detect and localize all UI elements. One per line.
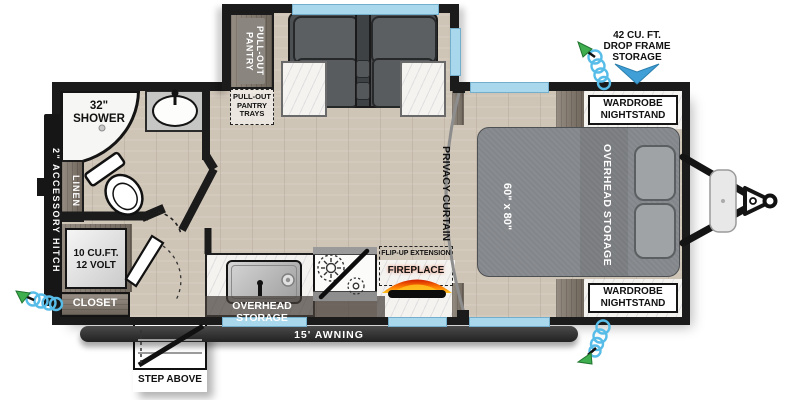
awning-label: 15' AWNING: [80, 329, 578, 341]
window-bottom-bedroom: [469, 317, 550, 327]
drop-frame-storage-label: 42 CU. FT. DROP FRAME STORAGE: [597, 30, 677, 66]
bathroom-sink: [152, 95, 198, 127]
stove-lid-hinge: [313, 247, 377, 255]
wardrobe-rear-label: WARDROBE NIGHTSTAND: [589, 98, 677, 122]
bathroom-wall-right: [202, 88, 210, 160]
window-bottom-center: [388, 317, 447, 327]
cord-plug-icon: [16, 291, 30, 303]
pillow-bottom: [634, 203, 676, 259]
fridge-label: 10 CU.FT. 12 VOLT: [66, 248, 126, 272]
pantry-label: PULL-OUT PANTRY: [238, 19, 265, 83]
theater-seat-back-right: [371, 16, 437, 64]
step-label: STEP ABOVE: [134, 374, 206, 387]
step-tread-2: [138, 352, 202, 354]
accessory-hitch-label: 2" ACCESSORY HITCH: [45, 118, 61, 302]
pantry-trays-label: PULL-OUT PANTRY TRAYS: [230, 93, 274, 121]
hitch-coupler: [765, 196, 776, 207]
window-slideout-side: [450, 28, 461, 76]
hose-nozzle-icon: [578, 42, 592, 57]
bed-size-label: 60" x 80": [493, 170, 513, 244]
hose-coil-bottom-right: [578, 321, 610, 365]
propane-tank-cover: [710, 170, 736, 232]
floorplan-canvas: 2" ACCESSORY HITCH 32" SHOWER LINEN 10 C…: [0, 0, 800, 400]
slideout-wall-left: [222, 4, 231, 90]
privacy-curtain-label: PRIVACY CURTAIN: [432, 140, 452, 248]
bedroom-doorframe-bottom: [452, 283, 464, 317]
fireplace-label: FIREPLACE: [380, 265, 452, 276]
end-table-left: [281, 61, 327, 117]
stove-base: [313, 291, 377, 301]
pillow-top: [634, 145, 676, 201]
drop-frame-storage-arrow-icon: [615, 64, 659, 84]
bedroom-cabinet-top: [556, 91, 584, 129]
window-bedroom-top: [470, 82, 549, 93]
bedroom-cabinet-bottom: [556, 279, 584, 317]
bed-overhead-label: OVERHEAD STORAGE: [593, 138, 613, 272]
wardrobe-front-label: WARDROBE NIGHTSTAND: [589, 286, 677, 310]
bedroom-doorframe-top: [452, 91, 464, 125]
end-table-right: [400, 61, 446, 117]
theater-seat-back-left: [293, 16, 359, 64]
accessory-hitch-receiver: [37, 178, 45, 196]
console-cupholder-2: [356, 82, 370, 100]
wall-rear: [682, 82, 690, 325]
window-slideout-top: [292, 4, 439, 15]
kitchen-sink-basin: [231, 265, 297, 299]
tongue-hitch: [683, 157, 776, 243]
linen-label: LINEN: [63, 164, 81, 218]
shower-label: 32" SHOWER: [66, 100, 132, 130]
wall-bottom: [52, 317, 690, 325]
closet-label: CLOSET: [62, 297, 128, 311]
flip-up-extension-label: FLIP-UP EXTENSION: [380, 250, 452, 259]
kitchen-overhead-label: OVERHEAD STORAGE: [207, 300, 317, 313]
hose-nozzle-icon: [578, 353, 592, 364]
console-cupholder-1: [356, 60, 370, 78]
